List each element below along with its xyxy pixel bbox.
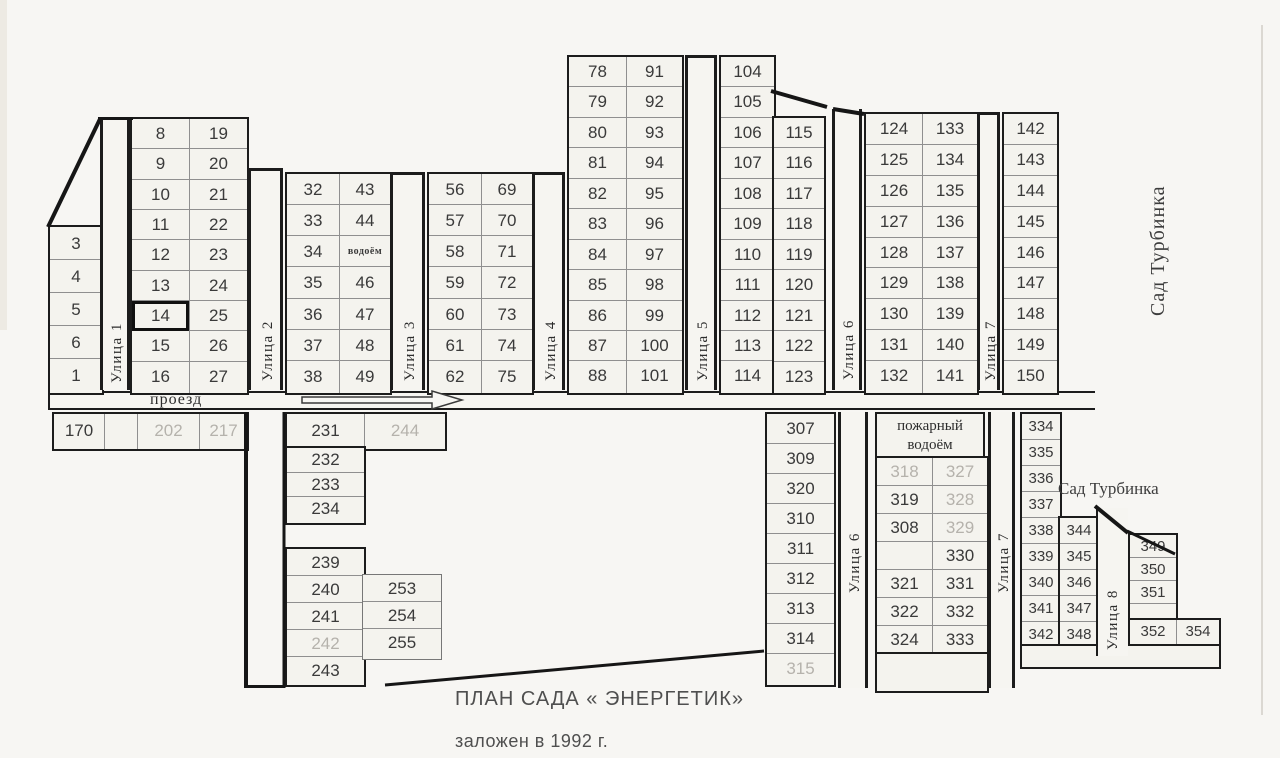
plot-109: 109 bbox=[721, 209, 774, 239]
plots-56-75-column: 56575859606162 bbox=[429, 174, 481, 393]
plot-150: 150 bbox=[1004, 361, 1057, 392]
street-8: Улица 8 bbox=[1096, 508, 1128, 656]
street-6-upper: Улица 6 bbox=[832, 109, 862, 390]
plot-141: 141 bbox=[923, 361, 977, 392]
row-170-217-column: 170 bbox=[54, 414, 104, 449]
empty-cell bbox=[877, 654, 987, 690]
plan-subtitle: заложен в 1992 г. bbox=[455, 731, 608, 752]
plot-15: 15 bbox=[132, 331, 189, 361]
plot-37: 37 bbox=[287, 330, 339, 361]
plot-79: 79 bbox=[569, 87, 626, 117]
plot-117: 117 bbox=[774, 179, 824, 209]
plot-217: 217 bbox=[200, 414, 247, 448]
plot-328: 328 bbox=[933, 486, 987, 514]
plot-32: 32 bbox=[287, 174, 339, 205]
street-4: Улица 4 bbox=[532, 172, 565, 390]
plot-100: 100 bbox=[627, 331, 682, 361]
plot-339: 339 bbox=[1022, 544, 1060, 570]
row-352-354: 352354 bbox=[1128, 618, 1221, 646]
row-170-217-column bbox=[104, 414, 137, 449]
plot-19: 19 bbox=[190, 119, 247, 149]
plots-115-123-column: 115116117118119120121122123 bbox=[774, 118, 824, 393]
plot-80: 80 bbox=[569, 118, 626, 148]
plots-fire-pond-grid-column: 318319308321322324 bbox=[877, 458, 932, 655]
plot-22: 22 bbox=[190, 210, 247, 240]
fire-pond-header-line: пожарный bbox=[877, 417, 983, 436]
plot-332: 332 bbox=[933, 598, 987, 626]
plot-322: 322 bbox=[877, 598, 932, 626]
plot-120: 120 bbox=[774, 270, 824, 300]
plot-123: 123 bbox=[774, 362, 824, 392]
plot-92: 92 bbox=[627, 87, 682, 117]
plots-334-342-column: 334335336337338339340341342 bbox=[1022, 414, 1060, 649]
plot-93: 93 bbox=[627, 118, 682, 148]
plot-74: 74 bbox=[482, 330, 532, 361]
plot-106: 106 bbox=[721, 118, 774, 148]
plot-110: 110 bbox=[721, 240, 774, 270]
plot-319: 319 bbox=[877, 486, 932, 514]
plot-129: 129 bbox=[866, 268, 922, 299]
plot-321: 321 bbox=[877, 570, 932, 598]
plot-35: 35 bbox=[287, 267, 339, 298]
plot-240: 240 bbox=[287, 576, 364, 603]
diagonal-block5 bbox=[771, 91, 827, 107]
plot-241: 241 bbox=[287, 603, 364, 630]
plot-58: 58 bbox=[429, 236, 481, 267]
street-2-label: Улица 2 bbox=[260, 320, 277, 381]
plot-43: 43 bbox=[340, 174, 390, 205]
plot-36: 36 bbox=[287, 299, 339, 330]
garden-plan-canvas: проезд Сад Турбинка Сад Турбинка ПЛАН СА… bbox=[0, 0, 1280, 758]
plot-131: 131 bbox=[866, 330, 922, 361]
plot-24: 24 bbox=[190, 271, 247, 301]
plot-340: 340 bbox=[1022, 570, 1060, 596]
plot-105: 105 bbox=[721, 87, 774, 117]
plot-344: 344 bbox=[1060, 518, 1098, 544]
plots-253-255-column: 253254255 bbox=[363, 575, 441, 659]
street-3: Улица 3 bbox=[390, 172, 425, 390]
plots-124-141-column: 133134135136137138139140141 bbox=[922, 114, 977, 393]
street-8-label: Улица 8 bbox=[1105, 589, 1122, 650]
plot-94: 94 bbox=[627, 148, 682, 178]
plot-71: 71 bbox=[482, 236, 532, 267]
plot-311: 311 bbox=[767, 534, 834, 564]
plots-56-75: 5657585960616269707172737475 bbox=[427, 172, 534, 395]
plots-8-27: 8910111213141516192021222324252627 bbox=[130, 117, 249, 395]
plot-112: 112 bbox=[721, 301, 774, 331]
row-170-217-column: 202 bbox=[137, 414, 199, 449]
plot-9: 9 bbox=[132, 149, 189, 179]
plot-324: 324 bbox=[877, 626, 932, 654]
plot-20: 20 bbox=[190, 149, 247, 179]
plot-13: 13 bbox=[132, 271, 189, 301]
plot-114: 114 bbox=[721, 361, 774, 391]
plot-82: 82 bbox=[569, 179, 626, 209]
plot-108: 108 bbox=[721, 179, 774, 209]
street-4-label: Улица 4 bbox=[543, 320, 560, 381]
plot-99: 99 bbox=[627, 301, 682, 331]
plot-331: 331 bbox=[933, 570, 987, 598]
plot-255: 255 bbox=[363, 629, 441, 656]
plot-318: 318 bbox=[877, 458, 932, 486]
plot-101: 101 bbox=[627, 361, 682, 391]
plot-25: 25 bbox=[190, 301, 247, 331]
plot-8: 8 bbox=[132, 119, 189, 149]
street-7-upper: Улица 7 bbox=[977, 112, 1000, 390]
street-7-upper-label: Улица 7 bbox=[983, 320, 1000, 381]
plots-104-114-column: 104105106107108109110111112113114 bbox=[721, 57, 774, 393]
plot-139: 139 bbox=[923, 299, 977, 330]
row-352-354-column: 352 bbox=[1130, 620, 1176, 644]
plot-81: 81 bbox=[569, 148, 626, 178]
fire-pond-footer bbox=[875, 652, 989, 693]
plot-136: 136 bbox=[923, 207, 977, 238]
plots-115-123: 115116117118119120121122123 bbox=[772, 116, 826, 395]
region-label-right: Сад Турбинка bbox=[1147, 186, 1170, 317]
plot-307: 307 bbox=[767, 414, 834, 444]
plots-307-315-column: 307309320310311312313314315 bbox=[767, 414, 834, 685]
plot-87: 87 bbox=[569, 331, 626, 361]
empty-cell bbox=[877, 542, 932, 570]
street-5-label: Улица 5 bbox=[695, 320, 712, 381]
plot-98: 98 bbox=[627, 270, 682, 300]
street-7-lower-label: Улица 7 bbox=[996, 532, 1013, 593]
plot-134: 134 bbox=[923, 145, 977, 176]
plot-145: 145 bbox=[1004, 207, 1057, 238]
plot-14: 14 bbox=[132, 301, 189, 331]
plots-253-255: 253254255 bbox=[362, 574, 442, 660]
plot-314: 314 bbox=[767, 624, 834, 654]
plot-338: 338 bbox=[1022, 518, 1060, 544]
street-6-lower: Улица 6 bbox=[838, 412, 868, 688]
plot-143: 143 bbox=[1004, 145, 1057, 176]
plot-34: 34 bbox=[287, 236, 339, 267]
plots-104-114: 104105106107108109110111112113114 bbox=[719, 55, 776, 395]
plot-60: 60 bbox=[429, 299, 481, 330]
fire-pond-header-line: водоём bbox=[877, 436, 983, 455]
street-1-label: Улица 1 bbox=[109, 322, 126, 383]
plot-47: 47 bbox=[340, 299, 390, 330]
plot-254: 254 bbox=[363, 602, 441, 629]
street-7-lower: Улица 7 bbox=[988, 412, 1015, 688]
plot-128: 128 bbox=[866, 238, 922, 269]
plot-312: 312 bbox=[767, 564, 834, 594]
street-6-lower-label: Улица 6 bbox=[847, 532, 864, 593]
plots-3-1-column: 34561 bbox=[50, 227, 102, 393]
plot-73: 73 bbox=[482, 299, 532, 330]
plots-232-234-column: 232233234 bbox=[287, 448, 364, 523]
plot-242: 242 bbox=[287, 630, 364, 657]
plot-308: 308 bbox=[877, 514, 932, 542]
plot-49: 49 bbox=[340, 361, 390, 392]
plot-233: 233 bbox=[287, 473, 364, 498]
row-170-217-column: 217 bbox=[199, 414, 247, 449]
plot-6: 6 bbox=[50, 326, 102, 359]
plot-137: 137 bbox=[923, 238, 977, 269]
row-231-244-column: 244 bbox=[364, 414, 445, 449]
plot-148: 148 bbox=[1004, 299, 1057, 330]
plot-349: 349 bbox=[1130, 535, 1176, 558]
plot-113: 113 bbox=[721, 331, 774, 361]
plot-26: 26 bbox=[190, 331, 247, 361]
plot-125: 125 bbox=[866, 145, 922, 176]
plot-91: 91 bbox=[627, 57, 682, 87]
plots-8-27-column: 192021222324252627 bbox=[189, 119, 247, 393]
plot-97: 97 bbox=[627, 240, 682, 270]
plot-96: 96 bbox=[627, 209, 682, 239]
plot-124: 124 bbox=[866, 114, 922, 145]
plot-335: 335 bbox=[1022, 440, 1060, 466]
plot-202: 202 bbox=[138, 414, 199, 448]
plots-3-1: 34561 bbox=[48, 225, 104, 395]
plots-78-101-column: 7879808182838485868788 bbox=[569, 57, 626, 393]
plot-119: 119 bbox=[774, 240, 824, 270]
plot-46: 46 bbox=[340, 267, 390, 298]
plot-149: 149 bbox=[1004, 330, 1057, 361]
plot-104: 104 bbox=[721, 57, 774, 87]
plot-116: 116 bbox=[774, 148, 824, 178]
plot-313: 313 bbox=[767, 594, 834, 624]
fire-pond-header: пожарныйводоём bbox=[875, 412, 985, 458]
plot-44: 44 bbox=[340, 205, 390, 236]
plot-107: 107 bbox=[721, 148, 774, 178]
plot-346: 346 bbox=[1060, 570, 1098, 596]
plots-349-351: 349350351 bbox=[1128, 533, 1178, 623]
plots-8-27-column: 8910111213141516 bbox=[132, 119, 189, 393]
plots-fire-pond-grid-column: 327328329330331332333 bbox=[932, 458, 987, 655]
plot-341: 341 bbox=[1022, 596, 1060, 622]
row-352-354-column: 354 bbox=[1176, 620, 1219, 644]
region-label-bottom: Сад Турбинка bbox=[1058, 479, 1159, 499]
plot-1: 1 bbox=[50, 359, 102, 392]
plot-4: 4 bbox=[50, 260, 102, 293]
plot-132: 132 bbox=[866, 361, 922, 392]
plot-309: 309 bbox=[767, 444, 834, 474]
plot-345: 345 bbox=[1060, 544, 1098, 570]
plot-320: 320 bbox=[767, 474, 834, 504]
plot-38: 38 bbox=[287, 361, 339, 392]
fire-pond-footer-column bbox=[877, 654, 987, 691]
street-3-label: Улица 3 bbox=[402, 320, 419, 381]
plots-32-49: 323334353637384344водоём46474849 bbox=[285, 172, 392, 395]
plot-127: 127 bbox=[866, 207, 922, 238]
plot-327: 327 bbox=[933, 458, 987, 486]
plot-12: 12 bbox=[132, 240, 189, 270]
plot-95: 95 bbox=[627, 179, 682, 209]
scan-edge-artifact-left bbox=[0, 0, 7, 330]
plot-232: 232 bbox=[287, 448, 364, 473]
plots-56-75-column: 69707172737475 bbox=[481, 174, 532, 393]
plot-140: 140 bbox=[923, 330, 977, 361]
plots-32-49-column: 32333435363738 bbox=[287, 174, 339, 393]
plot-315: 315 bbox=[767, 654, 834, 684]
plot-126: 126 bbox=[866, 176, 922, 207]
plot-170: 170 bbox=[54, 414, 104, 448]
plots-fire-pond-grid: 318319308321322324327328329330331332333 bbox=[875, 456, 989, 657]
plot-88: 88 bbox=[569, 361, 626, 391]
plots-124-141: 1241251261271281291301311321331341351361… bbox=[864, 112, 979, 395]
plot-347: 347 bbox=[1060, 596, 1098, 622]
plots-32-49-column: 4344водоём46474849 bbox=[339, 174, 390, 393]
plot-78: 78 bbox=[569, 57, 626, 87]
plot-27: 27 bbox=[190, 362, 247, 392]
plot-84: 84 bbox=[569, 240, 626, 270]
plots-239-243: 239240241242243 bbox=[285, 547, 366, 687]
plots-334-342: 334335336337338339340341342 bbox=[1020, 412, 1062, 651]
plots-78-101-column: 919293949596979899100101 bbox=[626, 57, 682, 393]
plot-138: 138 bbox=[923, 268, 977, 299]
plot-336: 336 bbox=[1022, 466, 1060, 492]
plot-142: 142 bbox=[1004, 114, 1057, 145]
plot-10: 10 bbox=[132, 180, 189, 210]
plot-253: 253 bbox=[363, 575, 441, 602]
plots-78-101: 7879808182838485868788919293949596979899… bbox=[567, 55, 684, 395]
plot-86: 86 bbox=[569, 301, 626, 331]
plot-85: 85 bbox=[569, 270, 626, 300]
plot-62: 62 bbox=[429, 361, 481, 392]
empty-cell bbox=[105, 414, 137, 448]
diagonal-top-left bbox=[48, 119, 100, 227]
plot-111: 111 bbox=[721, 270, 774, 300]
plot-61: 61 bbox=[429, 330, 481, 361]
row-170-217: 170202217 bbox=[52, 412, 249, 451]
plot-21: 21 bbox=[190, 180, 247, 210]
scan-edge-artifact-right bbox=[1261, 25, 1263, 715]
plots-344-348-column: 344345346347348 bbox=[1060, 518, 1098, 649]
street-6-upper-label: Улица 6 bbox=[841, 319, 858, 380]
plot-115: 115 bbox=[774, 118, 824, 148]
plot-33: 33 bbox=[287, 205, 339, 236]
street-5: Улица 5 bbox=[685, 55, 717, 390]
plot-334: 334 bbox=[1022, 414, 1060, 440]
plot-5: 5 bbox=[50, 293, 102, 326]
plot-3: 3 bbox=[50, 227, 102, 260]
plot-337: 337 bbox=[1022, 492, 1060, 518]
plots-239-243-column: 239240241242243 bbox=[287, 549, 364, 685]
plot-59: 59 bbox=[429, 267, 481, 298]
plot-130: 130 bbox=[866, 299, 922, 330]
plot-133: 133 bbox=[923, 114, 977, 145]
plot-69: 69 bbox=[482, 174, 532, 205]
plot-121: 121 bbox=[774, 301, 824, 331]
pond-cell: водоём bbox=[340, 236, 390, 267]
plots-307-315: 307309320310311312313314315 bbox=[765, 412, 836, 687]
plot-352: 352 bbox=[1130, 620, 1176, 643]
street-2: Улица 2 bbox=[248, 168, 283, 390]
plot-70: 70 bbox=[482, 205, 532, 236]
plot-234: 234 bbox=[287, 497, 364, 522]
plot-329: 329 bbox=[933, 514, 987, 542]
plot-23: 23 bbox=[190, 240, 247, 270]
plot-72: 72 bbox=[482, 267, 532, 298]
plot-244: 244 bbox=[365, 414, 445, 448]
row-231-244-column: 231 bbox=[287, 414, 364, 449]
plot-350: 350 bbox=[1130, 558, 1176, 581]
plot-310: 310 bbox=[767, 504, 834, 534]
plot-144: 144 bbox=[1004, 176, 1057, 207]
plot-16: 16 bbox=[132, 362, 189, 392]
plot-330: 330 bbox=[933, 542, 987, 570]
plot-83: 83 bbox=[569, 209, 626, 239]
street-1: Улица 1 bbox=[100, 117, 130, 390]
plot-239: 239 bbox=[287, 549, 364, 576]
plot-146: 146 bbox=[1004, 238, 1057, 269]
plot-11: 11 bbox=[132, 210, 189, 240]
plots-142-150-column: 142143144145146147148149150 bbox=[1004, 114, 1057, 393]
plot-243: 243 bbox=[287, 657, 364, 684]
plot-231: 231 bbox=[287, 414, 364, 448]
plot-351: 351 bbox=[1130, 581, 1176, 604]
plots-344-348: 344345346347348 bbox=[1058, 516, 1100, 651]
plot-57: 57 bbox=[429, 205, 481, 236]
plot-75: 75 bbox=[482, 361, 532, 392]
plot-122: 122 bbox=[774, 331, 824, 361]
plots-349-351-column: 349350351 bbox=[1130, 535, 1176, 621]
plots-232-234: 232233234 bbox=[285, 446, 366, 525]
plot-333: 333 bbox=[933, 626, 987, 654]
plot-147: 147 bbox=[1004, 268, 1057, 299]
plan-title: ПЛАН САДА « ЭНЕРГЕТИК» bbox=[455, 688, 744, 711]
plots-124-141-column: 124125126127128129130131132 bbox=[866, 114, 922, 393]
plot-354: 354 bbox=[1177, 620, 1219, 643]
plots-142-150: 142143144145146147148149150 bbox=[1002, 112, 1059, 395]
plot-135: 135 bbox=[923, 176, 977, 207]
plot-118: 118 bbox=[774, 209, 824, 239]
plot-56: 56 bbox=[429, 174, 481, 205]
plot-48: 48 bbox=[340, 330, 390, 361]
